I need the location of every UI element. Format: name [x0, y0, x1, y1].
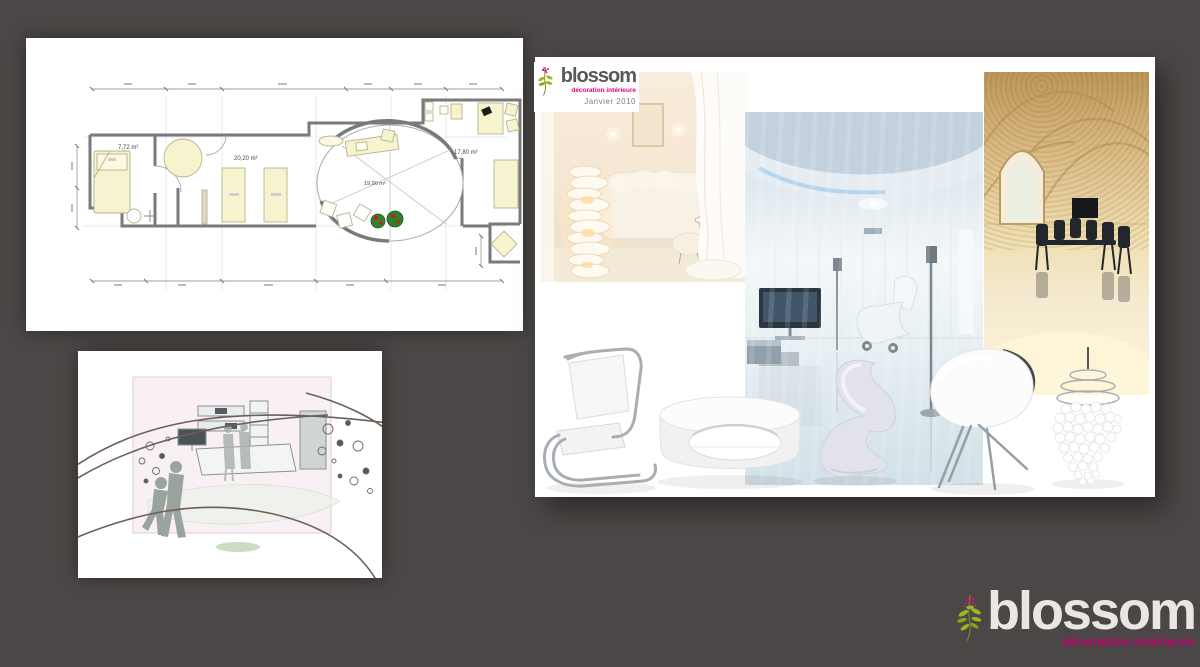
- shell-discs: [1053, 402, 1122, 486]
- brand-logo: blossom décoration intérieure: [955, 570, 1195, 665]
- brand-tagline: décoration intérieure: [1062, 637, 1195, 648]
- tub-chair: [931, 349, 1036, 489]
- arch-window: [1000, 151, 1044, 224]
- blossom-flower-icon: [537, 66, 554, 96]
- furniture-row: [535, 319, 1155, 497]
- presentation-canvas: 7,72 m² 20,20 m² 19,90 m² 17,80 m²: [0, 0, 1200, 667]
- moodboard-header: blossom décoration intérieure Janvier 20…: [534, 62, 639, 112]
- pebble-lamp: [561, 164, 613, 280]
- cantilever-chair: [545, 349, 656, 486]
- room-label: 19,90 m²: [364, 181, 386, 187]
- floorplan-panel: 7,72 m² 20,20 m² 19,90 m² 17,80 m²: [26, 38, 523, 331]
- furniture-shadows: [546, 475, 1124, 495]
- blossom-flower-icon: [955, 572, 985, 664]
- room-label: 17,80 m²: [454, 150, 478, 156]
- brand-name: blossom: [561, 66, 636, 86]
- panton-chair: [820, 360, 895, 477]
- oval-coffee-table: [660, 397, 800, 469]
- moodboard-panel: blossom décoration intérieure Janvier 20…: [535, 57, 1155, 497]
- interior-sketch: [78, 351, 382, 578]
- dining-set: [1036, 218, 1131, 302]
- room-label: 20,20 m²: [234, 156, 258, 162]
- brand-name: blossom: [987, 587, 1195, 636]
- shell-chandelier: [1053, 347, 1122, 486]
- wall-screen: [1072, 198, 1098, 218]
- sketch-panel: [78, 351, 382, 578]
- brand-tagline: décoration intérieure: [571, 88, 636, 95]
- issue-date: Janvier 2010: [584, 98, 636, 106]
- sketch-furniture: [178, 401, 326, 475]
- room-label: 7,72 m²: [118, 145, 138, 151]
- green-smudge: [216, 542, 260, 552]
- floorplan-drawing: 7,72 m² 20,20 m² 19,90 m² 17,80 m²: [26, 38, 523, 331]
